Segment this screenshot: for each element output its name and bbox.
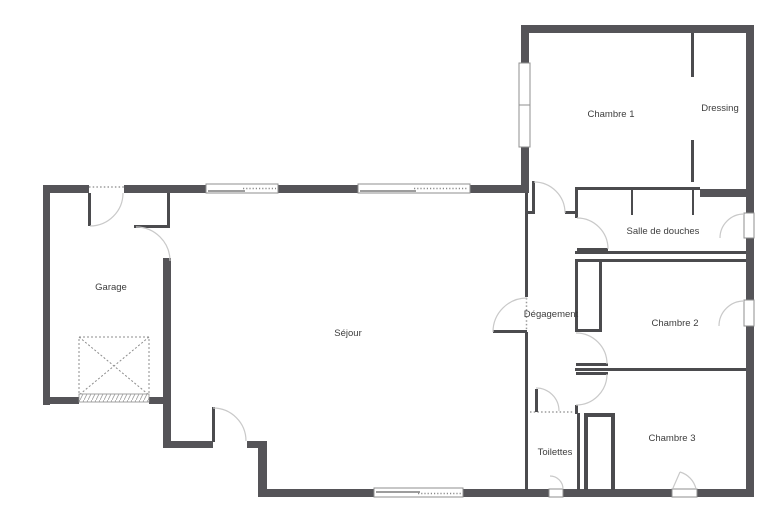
duct-wall [611, 413, 615, 490]
door-chambre3 [576, 372, 608, 405]
room-label-toilettes: Toilettes [538, 447, 573, 458]
room-label-chambre1: Chambre 1 [588, 109, 635, 120]
room-label-dressing: Dressing [701, 103, 739, 114]
wall-segment [563, 489, 672, 497]
wall-segment [521, 25, 754, 33]
wall-segment [470, 185, 529, 193]
wall-segment [525, 332, 528, 490]
room-label-salle-de-douches: Salle de douches [627, 226, 700, 237]
door-salle-de-douches [577, 218, 608, 251]
wall-segment [697, 489, 746, 497]
dressing-partition [691, 33, 694, 77]
wall-segment [575, 251, 746, 254]
wall-segment [278, 185, 358, 193]
window-salle-de-douches [720, 213, 754, 238]
window-chambre1-left [519, 63, 530, 147]
wall-segment [521, 33, 529, 63]
room-label-chambre3: Chambre 3 [649, 433, 696, 444]
room-label-chambre2: Chambre 2 [652, 318, 699, 329]
wall-segment [575, 188, 578, 218]
wall-segment [575, 368, 746, 371]
wall-segment [463, 489, 549, 497]
floor-plan-drawing: Garage Séjour Dégagement Chambre 1 Dress… [0, 0, 782, 526]
garage-door [79, 394, 149, 402]
window-sejour-top-left [206, 184, 278, 193]
door-chambre1 [532, 181, 565, 213]
room-label-degagement: Dégagement [524, 309, 579, 320]
duct-wall [584, 413, 588, 490]
room-label-garage: Garage [95, 282, 127, 293]
shower-partition [631, 190, 633, 215]
floor-plan-canvas: Garage Séjour Dégagement Chambre 1 Dress… [0, 0, 782, 526]
window-chambre2 [719, 300, 754, 326]
closet-wall [575, 262, 578, 331]
window-sejour-bottom [374, 488, 463, 497]
door-back-sejour [212, 407, 246, 442]
window-toilettes [549, 476, 563, 497]
wall-segment [525, 193, 528, 297]
wall-segment [171, 441, 213, 448]
door-sejour-degagement [493, 298, 527, 333]
room-labels: Garage Séjour Dégagement Chambre 1 Dress… [95, 103, 739, 458]
shower-partition [692, 190, 694, 215]
window-chambre3 [672, 472, 697, 497]
wall-segment [124, 185, 206, 193]
wall-segment [575, 187, 700, 190]
wall-segment [575, 405, 578, 414]
door-garage-sejour [134, 225, 170, 261]
closet-wall [575, 329, 602, 332]
wall-segment [746, 326, 754, 497]
door-chambre2 [576, 333, 608, 366]
interior-walls [167, 33, 746, 490]
door-garage-exterior [88, 187, 124, 226]
dressing-partition [691, 140, 694, 182]
wall-segment [746, 238, 754, 300]
wall-segment [577, 413, 580, 490]
wall-segment [43, 397, 79, 404]
wall-segment [167, 193, 170, 227]
room-label-sejour: Séjour [334, 328, 361, 339]
window-sejour-top-right [358, 184, 470, 193]
garage-parking-symbol [79, 337, 149, 395]
wall-segment [43, 185, 50, 405]
closet-wall [599, 262, 602, 331]
door-toilettes [530, 388, 573, 412]
wall-segment [700, 189, 746, 197]
wall-segment [258, 441, 267, 497]
wall-segment [575, 259, 746, 262]
wall-segment [746, 25, 754, 213]
wall-segment [163, 258, 171, 448]
wall-segment [258, 489, 374, 497]
duct-wall [584, 413, 615, 417]
